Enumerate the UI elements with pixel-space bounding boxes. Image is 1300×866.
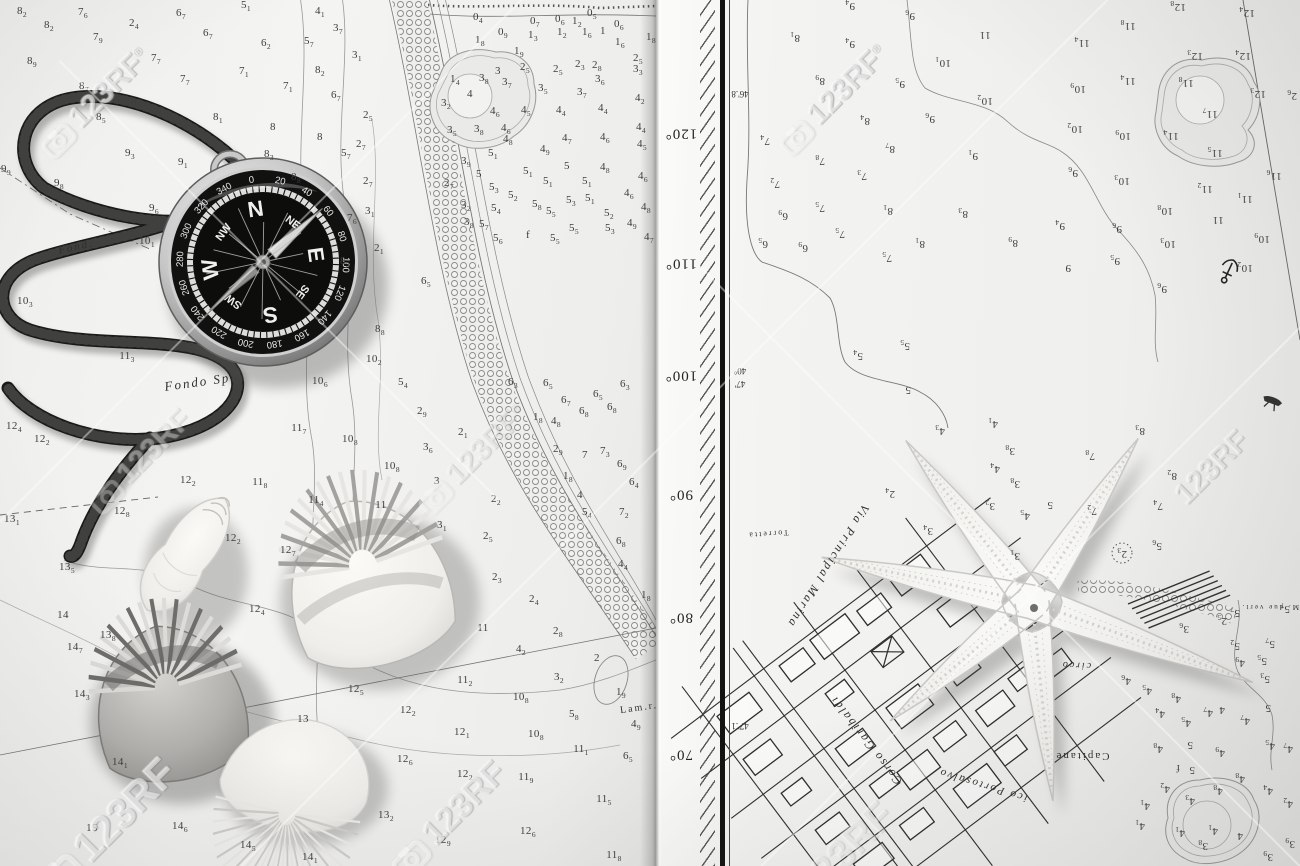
depth-sounding: 41: [1175, 825, 1185, 839]
depth-sounding: 79: [93, 31, 103, 45]
depth-sounding: f: [1176, 762, 1180, 774]
depth-sounding: 28: [553, 625, 563, 639]
depth-sounding: 49: [1235, 655, 1245, 669]
depth-sounding: 64: [629, 476, 639, 490]
depth-sounding: 124: [1235, 48, 1251, 62]
depth-sounding: 18: [475, 34, 485, 48]
depth-sounding: 5: [564, 160, 570, 172]
depth-sounding: 95: [895, 76, 905, 90]
depth-sounding: 5: [476, 168, 482, 180]
depth-sounding: 57: [1230, 605, 1240, 619]
depth-sounding: 55: [569, 222, 579, 236]
depth-sounding: 91: [968, 148, 978, 162]
depth-sounding: 122: [34, 433, 50, 447]
depth-sounding: 37: [333, 22, 343, 36]
depth-sounding: 18: [563, 470, 573, 484]
depth-sounding: 102: [977, 93, 993, 107]
depth-sounding: 27: [356, 138, 366, 152]
depth-sounding: 19: [616, 686, 626, 700]
depth-sounding: 3: [434, 475, 440, 487]
depth-sounding: 87: [885, 141, 895, 155]
depth-sounding: 81: [790, 30, 800, 44]
depth-sounding: 94: [1055, 218, 1065, 232]
depth-sounding: 12: [572, 15, 582, 29]
depth-sounding: 49: [627, 217, 637, 231]
depth-sounding: 45: [1142, 683, 1152, 697]
depth-sounding: 34: [923, 523, 933, 537]
scale-degree-label: 120°: [665, 125, 698, 142]
depth-sounding: 123: [1250, 86, 1266, 100]
depth-sounding: 83: [131, 96, 141, 110]
depth-sounding: 07: [530, 15, 540, 29]
depth-sounding: 8: [317, 131, 323, 143]
depth-sounding: 54: [491, 202, 501, 216]
depth-sounding: 46: [490, 105, 500, 119]
depth-sounding: 94: [845, 0, 855, 12]
depth-sounding: 69: [778, 208, 788, 222]
depth-sounding: 44: [636, 121, 646, 135]
depth-sounding: 14: [57, 609, 69, 621]
depth-sounding: 41: [1135, 818, 1145, 832]
depth-sounding: 72: [1087, 503, 1097, 517]
depth-sounding: 36: [1179, 621, 1189, 635]
depth-sounding: 51: [582, 175, 592, 189]
scale-degree-label: 110°: [665, 255, 697, 272]
depth-sounding: 32: [554, 671, 564, 685]
depth-sounding: 73: [857, 168, 867, 182]
map-label: Capitane: [1054, 750, 1109, 762]
depth-sounding: 78: [1085, 448, 1095, 462]
depth-sounding: 94: [845, 36, 855, 50]
depth-sounding: 141: [302, 851, 318, 865]
depth-sounding: 48: [600, 161, 610, 175]
scale-degree-label: 90°: [669, 486, 693, 503]
depth-sounding: 49: [1215, 745, 1225, 759]
depth-sounding: 25: [553, 63, 563, 77]
depth-sounding: 76: [347, 212, 357, 226]
depth-sounding: 89: [815, 73, 825, 87]
depth-sounding: 38: [1005, 443, 1015, 457]
depth-sounding: 23: [1117, 546, 1127, 560]
depth-sounding: 11: [1212, 214, 1223, 226]
depth-sounding: 11: [477, 622, 488, 634]
depth-sounding: 44: [598, 102, 608, 116]
depth-sounding: 65: [543, 377, 553, 391]
depth-sounding: 51: [241, 0, 251, 13]
depth-sounding: 48: [641, 201, 651, 215]
depth-sounding: 122: [225, 532, 241, 546]
depth-sounding: 47: [1203, 705, 1213, 719]
depth-sounding: 44: [1155, 706, 1165, 720]
depth-sounding: 53: [1260, 671, 1270, 685]
depth-sounding: 23: [492, 571, 502, 585]
starfish-madreporite: [1030, 604, 1038, 612]
depth-sounding: 145: [240, 839, 256, 853]
depth-sounding: 83: [958, 206, 968, 220]
depth-sounding: 38: [1198, 838, 1208, 852]
depth-sounding: 118: [1120, 18, 1136, 32]
depth-sounding: 42: [635, 92, 645, 106]
depth-sounding: 35: [538, 82, 548, 96]
depth-sounding: 42: [1283, 796, 1293, 810]
depth-sounding: 75: [835, 226, 845, 240]
depth-sounding: 81: [883, 203, 893, 217]
depth-sounding: 46: [638, 170, 648, 184]
depth-sounding: 82: [44, 19, 54, 33]
depth-sounding: 121: [454, 726, 470, 740]
depth-sounding: 114: [1163, 128, 1179, 142]
depth-sounding: 55: [1257, 653, 1267, 667]
depth-sounding: 45: [1020, 508, 1030, 522]
depth-sounding: 51: [523, 165, 533, 179]
depth-sounding: 74: [760, 133, 770, 147]
depth-sounding: 69: [798, 240, 808, 254]
depth-sounding: 116: [1266, 168, 1282, 182]
depth-sounding: 51: [585, 192, 595, 206]
depth-sounding: 122: [180, 474, 196, 488]
depth-sounding: 06: [614, 18, 624, 32]
depth-sounding: 88: [291, 171, 301, 185]
depth-sounding: 25: [1217, 613, 1227, 627]
depth-sounding: 1: [600, 25, 606, 37]
depth-sounding: 44: [990, 461, 1000, 475]
depth-sounding: 147: [67, 641, 83, 655]
depth-sounding: 69: [617, 458, 627, 472]
depth-sounding: 126: [520, 825, 536, 839]
depth-sounding: 68: [616, 535, 626, 549]
depth-sounding: 118: [252, 476, 268, 490]
depth-sounding: 37: [502, 76, 512, 90]
depth-sounding: 102: [1067, 121, 1083, 135]
depth-sounding: 51: [543, 175, 553, 189]
depth-sounding: 72: [770, 176, 780, 190]
depth-sounding: 16: [582, 26, 592, 40]
depth-sounding: 48: [1235, 771, 1245, 785]
depth-sounding: 57: [1265, 636, 1275, 650]
depth-sounding: 9: [1065, 262, 1071, 274]
depth-sounding: 117: [1202, 106, 1218, 120]
depth-sounding: 96: [1112, 221, 1122, 235]
depth-sounding: 53: [489, 181, 499, 195]
depth-sounding: 132: [378, 809, 394, 823]
depth-sounding: 125: [348, 683, 364, 697]
depth-sounding: 16: [615, 36, 625, 50]
depth-sounding: 84: [860, 113, 870, 127]
depth-sounding: 18: [646, 31, 656, 45]
depth-sounding: 68: [607, 401, 617, 415]
depth-sounding: 118: [1178, 75, 1194, 89]
depth-sounding: 24: [885, 486, 895, 500]
depth-sounding: 77: [180, 73, 190, 87]
depth-sounding: 7: [582, 449, 588, 461]
latitude-label: 47'.1: [731, 721, 748, 731]
depth-sounding: 108: [384, 460, 400, 474]
depth-sounding: 44: [618, 558, 628, 572]
depth-sounding: 62: [261, 37, 271, 51]
depth-sounding: 31: [365, 205, 375, 219]
depth-sounding: 38: [464, 216, 474, 230]
depth-sounding: 115: [1207, 145, 1223, 159]
depth-sounding: 89: [1008, 235, 1018, 249]
depth-sounding: 74: [1153, 498, 1163, 512]
depth-sounding: 135: [59, 561, 75, 575]
depth-sounding: 27: [363, 175, 373, 189]
depth-sounding: 65: [623, 750, 633, 764]
depth-sounding: 96: [1157, 281, 1167, 295]
depth-sounding: 83: [264, 148, 274, 162]
depth-sounding: 38: [1010, 476, 1020, 490]
depth-sounding: 43: [1185, 793, 1195, 807]
depth-sounding: 112: [1197, 181, 1213, 195]
latitude-label: 46'.8: [731, 89, 748, 99]
depth-sounding: 122: [457, 768, 473, 782]
depth-sounding: 111: [1237, 191, 1253, 205]
depth-sounding: 35: [447, 124, 457, 138]
depth-sounding: 47: [644, 231, 654, 245]
depth-sounding: 57: [341, 147, 351, 161]
depth-sounding: 83: [340, 255, 350, 269]
depth-sounding: 42: [1160, 781, 1170, 795]
depth-sounding: 44: [556, 104, 566, 118]
depth-sounding: 109: [1070, 81, 1086, 95]
depth-sounding: 48: [1213, 783, 1223, 797]
depth-sounding: 36: [595, 73, 605, 87]
depth-sounding: 3: [495, 65, 501, 77]
depth-sounding: 52: [1230, 638, 1240, 652]
depth-sounding: 122: [400, 704, 416, 718]
depth-sounding: 75: [815, 200, 825, 214]
depth-sounding: 143: [74, 688, 90, 702]
depth-sounding: 54: [582, 506, 592, 520]
depth-sounding: 71: [239, 65, 249, 79]
depth-sounding: 96: [905, 8, 915, 22]
depth-sounding: 96: [925, 111, 935, 125]
depth-sounding: 15: [86, 822, 98, 834]
scale-degree-label: 80°: [669, 609, 693, 626]
depth-sounding: 41: [1208, 823, 1218, 837]
depth-sounding: 124: [249, 603, 265, 617]
depth-sounding: 48: [1171, 691, 1181, 705]
depth-sounding: 33: [633, 63, 643, 77]
depth-sounding: 13: [528, 29, 538, 43]
depth-sounding: 114: [1074, 35, 1090, 49]
depth-sounding: 72: [619, 506, 629, 520]
depth-sounding: 82: [315, 64, 325, 78]
depth-sounding: 53: [566, 194, 576, 208]
depth-sounding: 45: [1265, 738, 1275, 752]
depth-sounding: 5: [905, 384, 911, 396]
depth-sounding: 101: [935, 55, 951, 69]
depth-sounding: 31: [1010, 548, 1020, 562]
depth-sounding: 11: [375, 499, 386, 511]
depth-sounding: 46: [600, 131, 610, 145]
depth-sounding: 68: [579, 405, 589, 419]
depth-sounding: 114: [308, 494, 324, 508]
depth-sounding: 21: [374, 242, 384, 256]
depth-sounding: 95: [1110, 253, 1120, 267]
depth-sounding: 89: [27, 55, 37, 69]
depth-sounding: 56: [1152, 538, 1162, 552]
photo-of-nautical-charts: 0204060801001201401601802002202402602803…: [0, 0, 1300, 866]
depth-sounding: 108: [513, 691, 529, 705]
depth-sounding: 67: [203, 27, 213, 41]
depth-sounding: 93: [125, 147, 135, 161]
depth-sounding: 75: [882, 250, 892, 264]
latitude-label: 40°: [734, 366, 747, 376]
depth-sounding: 123: [1187, 48, 1203, 62]
depth-sounding: 37: [577, 86, 587, 100]
depth-sounding: 117: [291, 422, 307, 436]
depth-sounding: 47: [1240, 713, 1250, 727]
depth-sounding: 23: [575, 58, 585, 72]
depth-sounding: 96: [1068, 165, 1078, 179]
depth-sounding: f: [526, 229, 530, 241]
depth-sounding: 67: [561, 394, 571, 408]
depth-sounding: 106: [312, 375, 328, 389]
depth-sounding: 47: [1283, 741, 1293, 755]
depth-sounding: 46: [1121, 673, 1131, 687]
depth-sounding: 49: [631, 718, 641, 732]
dial-number: 280: [175, 251, 187, 267]
depth-sounding: 119: [518, 771, 534, 785]
depth-sounding: 14: [450, 73, 460, 87]
depth-sounding: 138: [100, 629, 116, 643]
depth-sounding: 91: [178, 156, 188, 170]
dial-cardinal-w: W: [196, 257, 224, 281]
depth-sounding: 32: [461, 199, 471, 213]
depth-sounding: 41: [988, 416, 998, 430]
depth-sounding: 38: [479, 72, 489, 86]
depth-sounding: 54: [853, 348, 863, 362]
depth-sounding: 124: [1239, 5, 1255, 19]
depth-sounding: 65: [593, 388, 603, 402]
depth-sounding: 127: [280, 544, 296, 558]
depth-sounding: 29: [417, 405, 427, 419]
depth-sounding: 53: [605, 222, 615, 236]
depth-sounding: 103: [1160, 236, 1176, 250]
depth-sounding: 141: [112, 756, 128, 770]
depth-sounding: 36: [423, 441, 433, 455]
depth-sounding: 65: [421, 275, 431, 289]
depth-sounding: 47: [562, 132, 572, 146]
depth-sounding: 25: [363, 109, 373, 123]
depth-sounding: 24: [129, 17, 139, 31]
depth-sounding: 109: [1254, 231, 1270, 245]
depth-sounding: 49: [540, 143, 550, 157]
depth-sounding: 82: [17, 5, 27, 19]
depth-sounding: 11: [979, 29, 990, 41]
depth-sounding: 8: [270, 121, 276, 133]
depth-sounding: 5: [1189, 764, 1195, 776]
depth-sounding: 52: [604, 207, 614, 221]
depth-sounding: 73: [600, 445, 610, 459]
depth-sounding: 2: [594, 652, 600, 664]
depth-sounding: 108: [1157, 203, 1173, 217]
depth-sounding: 39: [461, 155, 471, 169]
depth-sounding: 32: [441, 97, 451, 111]
depth-sounding: 45: [1181, 715, 1191, 729]
depth-sounding: 113: [119, 350, 135, 364]
depth-sounding: 131: [4, 513, 20, 527]
depth-sounding: 12: [557, 26, 567, 40]
depth-sounding: 111: [573, 743, 589, 757]
depth-sounding: 103: [17, 295, 33, 309]
depth-sounding: 55: [900, 338, 910, 352]
depth-sounding: 57: [304, 35, 314, 49]
depth-sounding: 41: [1140, 798, 1150, 812]
depth-sounding: 24: [529, 593, 539, 607]
depth-sounding: 5: [1265, 702, 1271, 714]
depth-sounding: 48: [1153, 741, 1163, 755]
scale-degree-label: 70°: [669, 746, 693, 763]
map-label: circo: [1061, 659, 1092, 672]
depth-sounding: 4: [1237, 830, 1243, 842]
depth-sounding: 04: [473, 11, 483, 25]
depth-sounding: 57: [479, 218, 489, 232]
depth-sounding: 85: [96, 111, 106, 125]
depth-sounding: 45: [521, 104, 531, 118]
depth-sounding: 13: [297, 713, 309, 725]
depth-sounding: 19: [514, 45, 524, 59]
depth-sounding: 96: [149, 202, 159, 216]
depth-sounding: 102: [1237, 260, 1253, 274]
depth-sounding: 28: [592, 59, 602, 73]
depth-sounding: 78: [815, 153, 825, 167]
depth-sounding: 46: [624, 187, 634, 201]
depth-sounding: 146: [172, 820, 188, 834]
depth-sounding: 54: [398, 376, 408, 390]
depth-sounding: 65: [758, 236, 768, 250]
depth-sounding: 67: [176, 7, 186, 21]
depth-sounding: 56: [493, 232, 503, 246]
depth-sounding: 48: [503, 133, 513, 147]
depth-sounding: 55: [546, 205, 556, 219]
depth-sounding: 31: [352, 49, 362, 63]
depth-sounding: 82: [1167, 468, 1177, 482]
depth-sounding: 81: [915, 236, 925, 250]
depth-sounding: 39: [1285, 836, 1295, 850]
depth-sounding: 43: [935, 423, 945, 437]
depth-sounding: 58: [532, 198, 542, 212]
depth-sounding: 41: [315, 5, 325, 19]
depth-sounding: 27: [444, 177, 454, 191]
depth-sounding: 108: [528, 728, 544, 742]
depth-sounding: 58: [569, 708, 579, 722]
depth-sounding: 45: [637, 138, 647, 152]
depth-sounding: 124: [6, 420, 22, 434]
depth-sounding: 118: [606, 849, 622, 863]
depth-sounding: 52: [508, 189, 518, 203]
depth-sounding: 18: [533, 411, 543, 425]
depth-sounding: 51: [488, 147, 498, 161]
depth-sounding: 09: [498, 26, 508, 40]
depth-sounding: 38: [474, 123, 484, 137]
depth-sounding: 67: [331, 89, 341, 103]
depth-sounding: 76: [78, 6, 88, 20]
depth-sounding: 26: [1287, 88, 1297, 102]
depth-sounding: 29: [553, 443, 563, 457]
depth-sounding: 42: [516, 643, 526, 657]
depth-sounding: 71: [283, 80, 293, 94]
depth-sounding: 4: [1219, 704, 1225, 716]
depth-sounding: 4: [577, 489, 583, 501]
depth-sounding: 18: [641, 589, 651, 603]
scale-degree-label: 100°: [665, 367, 698, 384]
depth-sounding: 44: [1263, 783, 1273, 797]
depth-sounding: 22: [491, 493, 501, 507]
depth-sounding: 126: [397, 753, 413, 767]
depth-sounding: 103: [1114, 173, 1130, 187]
